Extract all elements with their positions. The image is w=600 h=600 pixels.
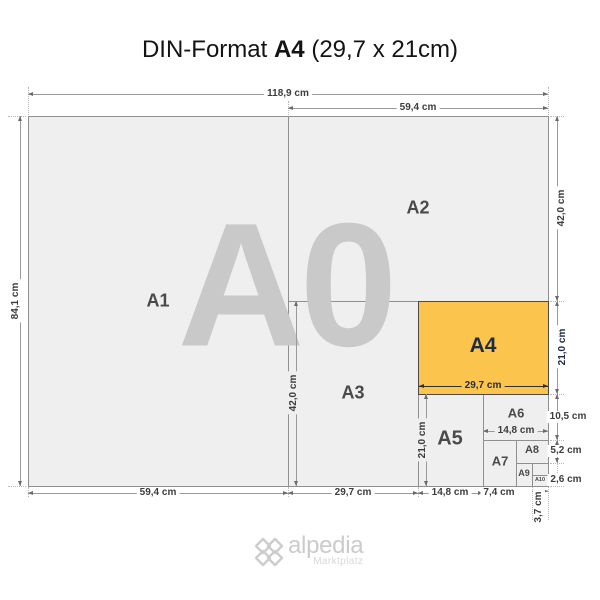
format-label-a8: A8 xyxy=(525,444,539,456)
din-format-diagram: DIN-Format A4 (29,7 x 21cm) A0 A1 A2 A3 … xyxy=(0,0,600,600)
dim-label-a2-height: 42,0 cm xyxy=(556,187,568,230)
extension-line xyxy=(8,116,26,117)
a0-watermark: A0 xyxy=(178,197,393,373)
logo-text-block: alpedia Marktplatz xyxy=(288,533,363,567)
logo-mark-icon xyxy=(253,537,285,567)
title-size: (29,7 x 21cm) xyxy=(305,36,458,63)
dim-label-a6-height: 10,5 cm xyxy=(547,411,590,423)
alpedia-logo: alpedia Marktplatz xyxy=(253,533,363,567)
format-label-a6: A6 xyxy=(508,406,525,421)
dim-label-bottom-a10-width: 3,7 cm xyxy=(533,488,545,525)
dim-label-bottom-a3-width: 29,7 cm xyxy=(332,487,375,499)
format-label-a5: A5 xyxy=(437,428,463,451)
dim-label-inner-a6-width: 14,8 cm xyxy=(495,425,538,437)
format-label-a1: A1 xyxy=(146,291,169,312)
dim-label-a4-height: 21,0 cm xyxy=(557,326,569,369)
extension-line xyxy=(550,486,564,487)
dim-label-a0-width: 118,9 cm xyxy=(264,88,312,100)
format-label-a3: A3 xyxy=(341,383,364,404)
dim-label-a10-height: 2,6 cm xyxy=(547,474,584,486)
dim-label-bottom-a1-width: 59,4 cm xyxy=(137,487,180,499)
dim-label-top-a1-width: 59,4 cm xyxy=(397,102,440,114)
dim-label-a0-height: 84,1 cm xyxy=(10,280,22,323)
dim-label-inner-a3-height: 42,0 cm xyxy=(288,372,300,415)
format-label-a9: A9 xyxy=(518,468,530,478)
extension-line xyxy=(548,487,549,520)
page-title: DIN-Format A4 (29,7 x 21cm) xyxy=(0,36,600,64)
format-label-a4: A4 xyxy=(470,334,497,358)
dim-label-a8-height: 5,2 cm xyxy=(547,445,584,457)
divider-a10 xyxy=(532,475,548,476)
format-label-a7: A7 xyxy=(492,454,509,469)
title-format: A4 xyxy=(274,36,305,63)
dim-label-bottom-a5-width: 14,8 cm xyxy=(429,487,472,499)
title-prefix: DIN-Format xyxy=(142,36,267,63)
dim-label-inner-a5-height: 21,0 cm xyxy=(417,419,429,462)
format-label-a2: A2 xyxy=(406,198,429,219)
extension-line xyxy=(548,87,549,115)
dim-label-bottom-a7-width: 7,4 cm xyxy=(480,487,517,499)
dim-label-inner-a4-width: 29,7 cm xyxy=(462,380,505,392)
format-label-a10: A10 xyxy=(535,477,545,483)
extension-line xyxy=(8,486,26,487)
